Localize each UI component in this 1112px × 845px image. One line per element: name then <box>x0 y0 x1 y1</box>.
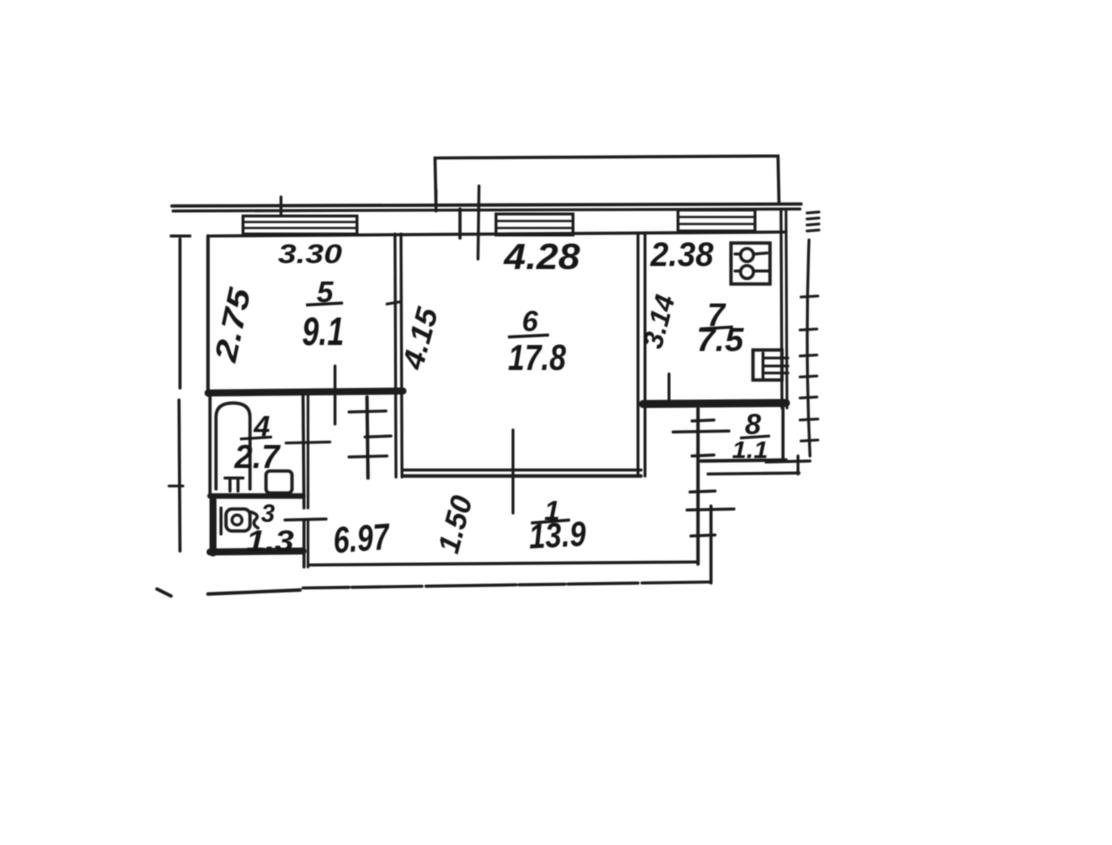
svg-text:3.30: 3.30 <box>278 239 342 269</box>
svg-text:2.38: 2.38 <box>650 236 714 274</box>
svg-text:17.8: 17.8 <box>508 337 566 378</box>
svg-text:13.9: 13.9 <box>528 515 587 557</box>
svg-text:3.14: 3.14 <box>637 291 681 352</box>
svg-text:4.15: 4.15 <box>397 303 446 374</box>
svg-text:1.3: 1.3 <box>246 525 294 558</box>
svg-text:2.75: 2.75 <box>208 284 258 366</box>
svg-text:1.50: 1.50 <box>432 492 479 557</box>
svg-text:3: 3 <box>261 500 275 528</box>
svg-text:7.5: 7.5 <box>697 321 745 358</box>
svg-text:6.97: 6.97 <box>332 516 393 561</box>
svg-text:1.1: 1.1 <box>732 437 768 464</box>
svg-text:6: 6 <box>522 306 539 338</box>
svg-text:4.28: 4.28 <box>503 236 580 277</box>
svg-text:2.7: 2.7 <box>234 438 282 475</box>
svg-text:9.1: 9.1 <box>302 310 344 354</box>
